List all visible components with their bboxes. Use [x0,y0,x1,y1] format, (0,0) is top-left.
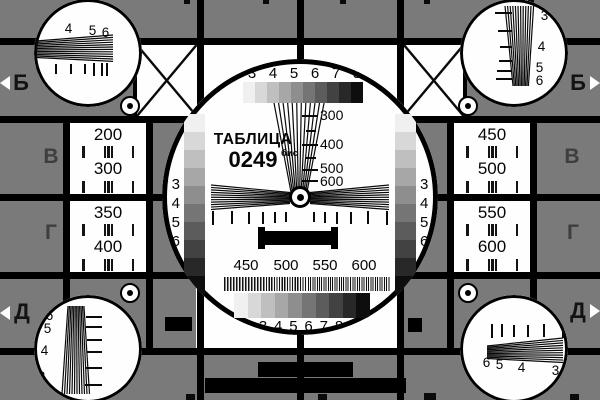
row-marker-letter: Г [40,222,62,243]
row-marker-arrow-icon [0,306,10,320]
row-marker-arrow-icon [590,76,600,90]
row-marker-letter: В [561,146,583,167]
row-markers: ББВВГГДД [0,0,600,400]
row-marker-arrow-icon [0,76,10,90]
row-marker-letter: Д [10,301,34,323]
row-marker-letter: Г [562,222,584,243]
tv-test-card: 200300350400450500550600ББВВГГДД34563456… [0,0,600,400]
row-marker-letter: Б [567,72,589,94]
row-marker-letter: Б [10,72,32,94]
row-marker-letter: Д [566,300,590,322]
row-marker-arrow-icon [590,304,600,318]
row-marker-letter: В [40,146,62,167]
